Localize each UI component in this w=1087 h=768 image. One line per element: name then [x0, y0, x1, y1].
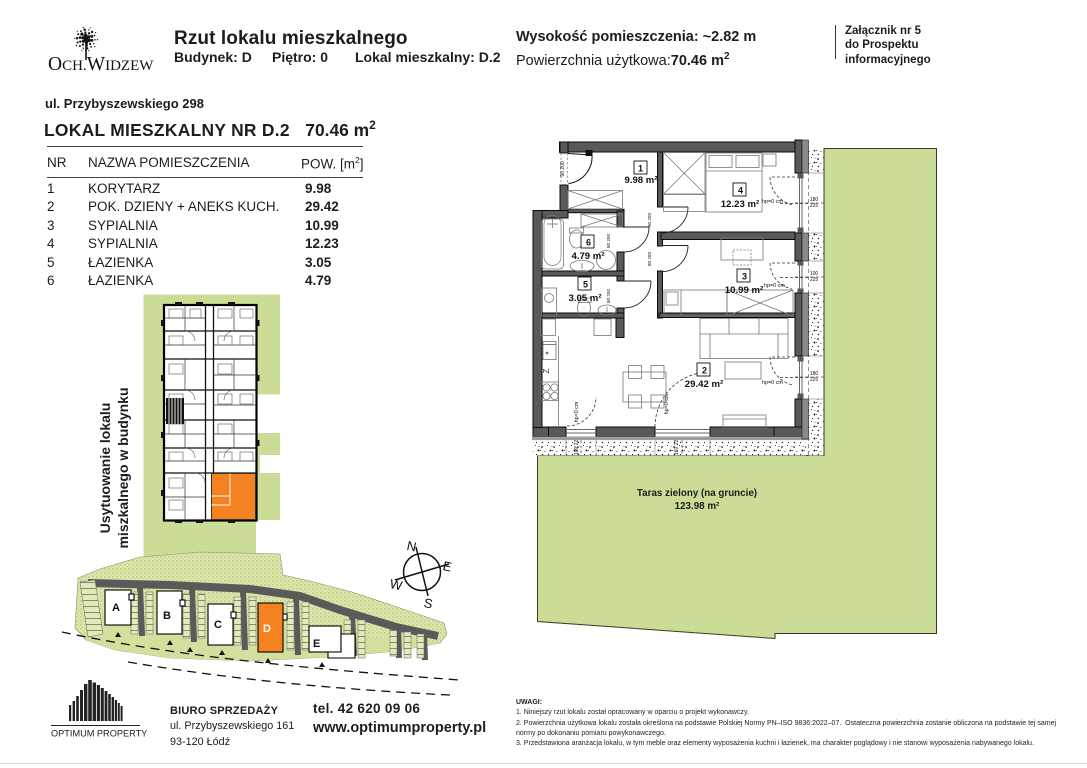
- svg-text:hp=0 cm: hp=0 cm: [764, 283, 785, 289]
- svg-text:OPTIMUM PROPERTY: OPTIMUM PROPERTY: [51, 729, 147, 739]
- svg-text:N: N: [405, 540, 417, 555]
- svg-text:4: 4: [738, 186, 743, 196]
- svg-text:Taras zielony (na gruncie): Taras zielony (na gruncie): [637, 488, 757, 499]
- svg-text:225: 225: [810, 277, 819, 283]
- svg-text:hp=0 cm: hp=0 cm: [762, 199, 783, 205]
- svg-text:3.05 m²: 3.05 m²: [568, 293, 601, 304]
- svg-text:S: S: [422, 595, 434, 612]
- svg-text:hp=0 cm: hp=0 cm: [762, 380, 783, 386]
- svg-text:C: C: [214, 619, 222, 631]
- svg-text:123.98 m²: 123.98 m²: [675, 501, 720, 512]
- svg-text:A: A: [112, 602, 120, 614]
- svg-text:80 200: 80 200: [647, 252, 652, 266]
- svg-text:E: E: [313, 638, 320, 650]
- svg-text:E: E: [441, 558, 453, 575]
- svg-text:90 200: 90 200: [560, 161, 566, 177]
- svg-text:29.42 m²: 29.42 m²: [685, 379, 723, 390]
- svg-text:10.99 m²: 10.99 m²: [725, 285, 763, 296]
- svg-text:5: 5: [583, 280, 588, 290]
- svg-text:W: W: [388, 576, 404, 593]
- svg-text:80 200: 80 200: [606, 289, 611, 303]
- svg-text:hp=0 cm: hp=0 cm: [664, 393, 670, 414]
- svg-text:Z: Z: [542, 368, 551, 373]
- svg-text:D: D: [263, 623, 271, 635]
- svg-text:225: 225: [810, 377, 819, 383]
- svg-text:hp=0 cm: hp=0 cm: [574, 401, 580, 422]
- svg-text:6: 6: [586, 238, 591, 248]
- svg-text:80 200: 80 200: [606, 234, 611, 248]
- svg-text:12.23 m²: 12.23 m²: [721, 199, 759, 210]
- svg-text:2: 2: [702, 366, 707, 376]
- svg-text:B: B: [163, 610, 171, 622]
- svg-text:80 200: 80 200: [647, 213, 652, 227]
- svg-text:OCH.WIDZEW: OCH.WIDZEW: [48, 54, 154, 72]
- svg-text:225: 225: [810, 203, 819, 209]
- svg-text:4.79 m²: 4.79 m²: [571, 251, 604, 262]
- svg-text:9.98 m²: 9.98 m²: [624, 175, 657, 186]
- svg-text:1: 1: [638, 164, 643, 174]
- svg-text:3: 3: [742, 272, 747, 282]
